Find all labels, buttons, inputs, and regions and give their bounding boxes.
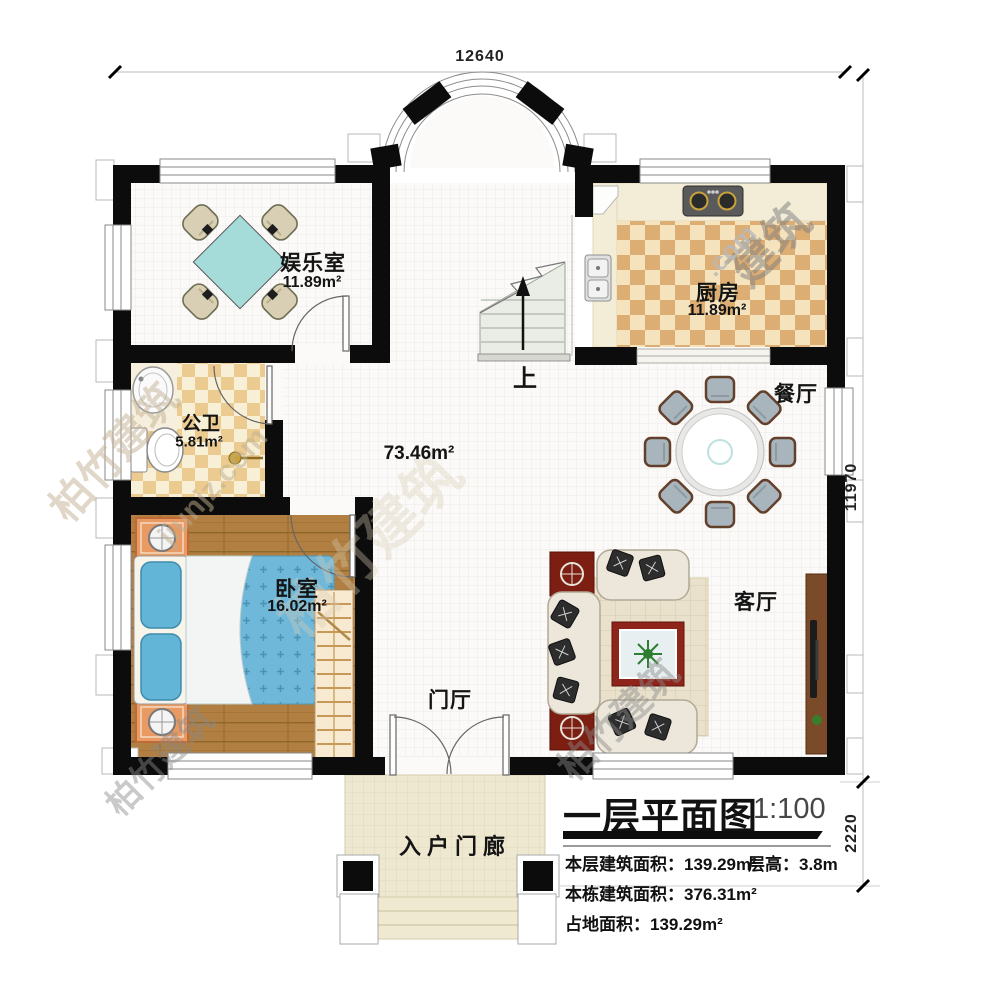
title-underline bbox=[563, 831, 810, 839]
stat-building-area-value: 376.31m² bbox=[684, 885, 757, 904]
stat-footprint-area-label: 占地面积： bbox=[565, 915, 650, 934]
stat-floor-area: 本层建筑面积：139.29m² bbox=[565, 850, 757, 875]
stat-building-area: 本栋建筑面积：376.31m² bbox=[565, 880, 757, 905]
floor-plan-page: 柏竹建筑 jiunjz.com 建筑 .com 柏竹建筑 柏竹建筑 柏竹建筑 1… bbox=[0, 0, 1000, 990]
title-underline-thin bbox=[563, 845, 831, 847]
plan-scale: 1:100 bbox=[753, 793, 826, 826]
floor-plan-drawing bbox=[0, 0, 1000, 990]
entertainment-set bbox=[179, 201, 301, 323]
stat-building-area-label: 本栋建筑面积： bbox=[565, 885, 684, 904]
stat-floor-height: 层高：3.8m bbox=[748, 850, 838, 875]
stat-floor-area-label: 本层建筑面积： bbox=[565, 855, 684, 874]
stat-floor-area-value: 139.29m² bbox=[684, 855, 757, 874]
stat-footprint-area: 占地面积：139.29m² bbox=[565, 910, 723, 935]
stat-floor-height-label: 层高： bbox=[748, 855, 799, 874]
dining-set bbox=[645, 377, 795, 527]
stat-footprint-area-value: 139.29m² bbox=[650, 915, 723, 934]
stat-floor-height-value: 3.8m bbox=[799, 855, 838, 874]
